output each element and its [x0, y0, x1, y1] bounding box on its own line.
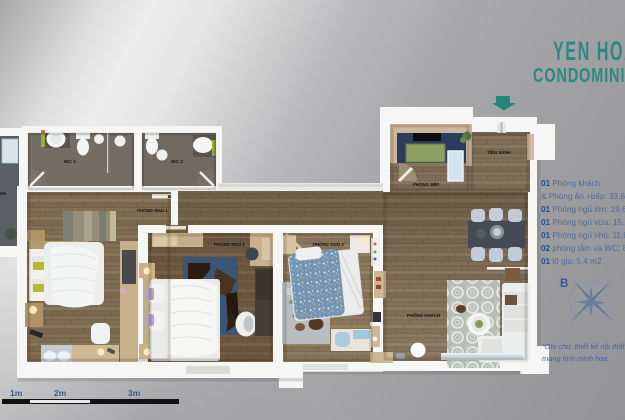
svg-text:WC 1: WC 1: [64, 159, 76, 165]
svg-text:PHÒNG NGỦ 1: PHÒNG NGỦ 1: [137, 208, 168, 213]
svg-text:1m: 1m: [10, 388, 23, 398]
svg-text:mang tính minh họa.: mang tính minh họa.: [542, 354, 609, 363]
svg-text:3m: 3m: [128, 388, 141, 398]
svg-text:01 Phòng khách: 01 Phòng khách: [541, 179, 601, 188]
svg-text:01 Phòng ngủ nhỏ: 11,8 m2: 01 Phòng ngủ nhỏ: 11,8 m2: [541, 231, 625, 240]
svg-text:02 phòng tắm và WC: 8,6: 02 phòng tắm và WC: 8,6: [541, 243, 625, 253]
svg-text:CONDOMINIUM: CONDOMINIUM: [533, 63, 625, 86]
svg-text:*Ghi chú: thiết kế nội thất: *Ghi chú: thiết kế nội thất: [542, 342, 625, 351]
svg-text:01 lô gia: 5,4 m2: 01 lô gia: 5,4 m2: [541, 257, 602, 266]
svg-text:TIỀN SẢNH: TIỀN SẢNH: [487, 150, 511, 155]
svg-text:01 Phòng ngủ vừa: 15,2 m2: 01 Phòng ngủ vừa: 15,2 m2: [541, 218, 625, 227]
svg-text:WC 2: WC 2: [171, 159, 183, 165]
svg-text:PHÒNG NGỦ 3: PHÒNG NGỦ 3: [313, 242, 344, 247]
svg-text:GIA: GIA: [0, 191, 7, 196]
svg-text:2m: 2m: [54, 388, 67, 398]
svg-text:01 Phòng ngủ lớn: 19,6 m2: 01 Phòng ngủ lớn: 19,6 m2: [541, 205, 625, 214]
svg-text:B: B: [560, 278, 568, 290]
svg-text:& Phòng ăn +bếp: 33,6 m2: & Phòng ăn +bếp: 33,6 m2: [541, 192, 625, 201]
svg-text:PHÒNG KHÁCH: PHÒNG KHÁCH: [407, 313, 440, 318]
svg-text:PHÒNG BẾP: PHÒNG BẾP: [413, 182, 439, 187]
svg-text:YEN HOA: YEN HOA: [553, 36, 625, 66]
svg-text:PHÒNG NGỦ 2: PHÒNG NGỦ 2: [214, 242, 245, 247]
